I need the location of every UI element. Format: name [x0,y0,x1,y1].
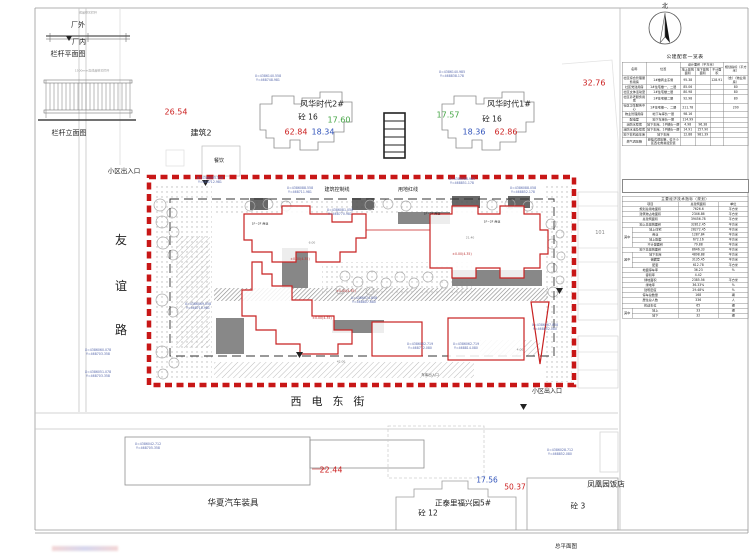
table-cell: 社区养老服务用房 [622,95,646,104]
building-footprints [242,206,549,469]
table-cell [723,137,748,146]
ladder-symbol [384,113,405,158]
site-plan-sheet: 北 公建配套一览表 总平面图 厂外厂内栏杆平面图栏杆立面图成品铁艺栏杆1500m… [0,0,750,553]
amenity-table: 名称位置设计面积（平方米）规划指标（平方米）地上建筑面积地下建筑面积不计面积社区… [622,62,749,146]
group-cell: 其中 [622,252,632,267]
table-cell: 80 [723,95,748,104]
table-cell: 157.90 [695,127,710,132]
table-cell: 地下非机动车库 [622,132,646,137]
amenity-row: 社区养老服务用房1#住宅楼二层92.9880 [622,95,748,104]
table-cell: 95.38 [680,76,695,85]
col-header: 名称 [622,62,646,76]
table-cell [695,95,710,104]
col-header: 规划指标（平方米） [723,62,748,76]
table-cell [695,76,710,85]
table-cell: 地下车库、1#楼负一层 [646,127,680,132]
table-cell: 128.91 [710,76,723,85]
table-cell [710,137,723,146]
table-cell: 32 [678,313,718,318]
table-cell: 114.99 [680,117,695,122]
col-header: 地下建筑面积 [695,67,710,76]
table-cell: 社区文体活动室 [622,90,646,95]
railing-plan-detail [46,33,130,42]
table-cell: 物业管理用房 [622,112,646,117]
amenity-row: 社区卫生服务中心1#住宅楼一、二层211.78200 [622,103,748,112]
table-cell [695,103,710,112]
table-cell [695,137,710,146]
table-cell: 1#住宅楼一、二层 [646,103,680,112]
table-cell [710,103,723,112]
table-cell: 社区综合管理服务用房 [622,76,646,85]
stamp-artifact [52,546,118,551]
table-cell: 消防水池及泵房 [622,127,646,132]
table-cell [680,137,695,146]
table-cell: 社区党建用房 [622,85,646,90]
table-cell: 92.98 [680,95,695,104]
north-arrow-icon [649,12,681,44]
table-cell: 1#住宅楼二层 [646,95,680,104]
amenity-table-container: 名称位置设计面积（平方米）规划指标（平方米）地上建筑面积地下建筑面积不计面积社区… [622,62,748,146]
col-header: 不计面积 [710,67,723,76]
table-spacer [622,179,749,193]
table-cell: 燃气调压箱 [622,137,646,146]
table-cell: 社区卫生服务中心 [622,103,646,112]
table-cell: 地下车库、1#楼负一层 [646,122,680,127]
table-cell: 981.39 [695,132,710,137]
group-cell: 其中 [622,227,632,247]
table-cell: 211.78 [680,103,695,112]
neighbor-101-strip [578,192,618,388]
group-cell: 其中 [622,308,632,318]
table-cell: 地下 [632,313,678,318]
table-cell: 1#楼商业东侧 [646,76,680,85]
south-neighbor-outlines [125,426,618,530]
table-cell: 1#住宅楼一、二层 [646,85,680,90]
col-header: 地上建筑面积 [680,67,695,76]
table-cell [710,95,723,104]
indicator-table: 主要经济技术指标（规划）项目总建筑面积单位规划总用地面积7626.6平方米建筑物… [622,196,749,318]
table-cell: （含）（物业用房） [723,76,748,85]
building2-outline [166,146,240,176]
indicator-table-container: 主要经济技术指标（规划）项目总建筑面积单位规划总用地面积7626.6平方米建筑物… [622,196,748,318]
table-cell: 200 [723,103,748,112]
indicator-row: 地下32辆 [622,313,748,318]
amenity-row: 社区综合管理服务用房1#楼商业东侧95.38128.91（含）（物业用房） [622,76,748,85]
table-cell: 悬挂式调压箱，位于小区西北角悬挂安装 [646,137,680,146]
amenity-row: 燃气调压箱悬挂式调压箱，位于小区西北角悬挂安装 [622,137,748,146]
table-cell: 辆 [718,313,748,318]
col-header: 位置 [646,62,680,76]
railing-elevation-detail [38,80,136,120]
